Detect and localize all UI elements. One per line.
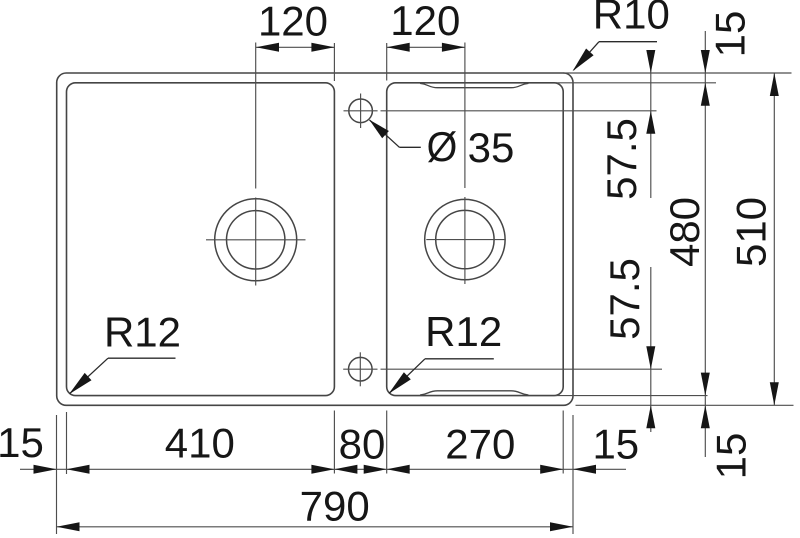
svg-text:R10: R10 [593, 0, 670, 38]
svg-text:270: 270 [445, 420, 515, 467]
svg-text:120: 120 [258, 0, 328, 45]
svg-text:Ø: Ø [427, 123, 458, 170]
svg-text:57.5: 57.5 [601, 258, 648, 340]
svg-text:15: 15 [706, 11, 753, 58]
svg-text:R12: R12 [425, 308, 502, 355]
svg-text:120: 120 [390, 0, 460, 44]
svg-text:510: 510 [727, 197, 774, 267]
svg-text:57.5: 57.5 [598, 118, 645, 200]
svg-text:R12: R12 [104, 308, 181, 355]
svg-text:15: 15 [592, 420, 639, 467]
svg-text:410: 410 [165, 420, 235, 467]
svg-text:80: 80 [339, 420, 386, 467]
svg-text:790: 790 [300, 482, 370, 529]
svg-text:35: 35 [468, 124, 515, 171]
svg-text:15: 15 [0, 419, 44, 466]
svg-text:15: 15 [707, 433, 754, 480]
svg-text:480: 480 [661, 197, 708, 267]
